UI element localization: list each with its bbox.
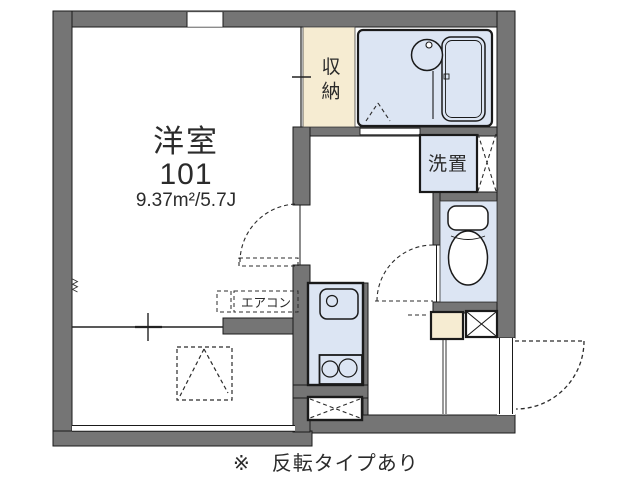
wall-right (497, 11, 515, 338)
toilet-tank-icon (448, 206, 488, 230)
top-window-gap (187, 12, 223, 27)
toilet-door-swing-arc (377, 245, 433, 301)
wall-aircon-block (223, 318, 293, 334)
wall-toilet-top (433, 192, 497, 201)
bathroom (358, 30, 492, 126)
washer-space: 洗置 (420, 134, 496, 192)
aircon: エアコン (217, 291, 298, 312)
ladder-hatch-triangle (180, 349, 228, 396)
ladder-hatch-frame (177, 347, 232, 400)
stove-burner-right (339, 359, 357, 377)
kitchen-hatch-box (308, 397, 362, 420)
room-number: 101 (159, 158, 212, 191)
genkan-step (431, 312, 463, 339)
bottom-window-gap (72, 426, 295, 432)
room-door-swing-arc (240, 204, 298, 262)
kitchen-sink-icon (320, 289, 358, 319)
wall-toilet-left (433, 192, 440, 245)
bottom-window (72, 426, 295, 432)
shaft-x-mark (478, 134, 496, 191)
room-window-partition (72, 279, 223, 341)
top-window (187, 12, 223, 27)
aircon-label: エアコン (241, 296, 291, 310)
room-door-leaf (239, 258, 298, 266)
room-area: 9.37m²/5.7J (136, 190, 236, 211)
aircon-pipe-box (217, 291, 231, 312)
floor-plan-drawing: 収納 洗置 (0, 0, 640, 483)
kitchen-hatch-frame (308, 397, 362, 420)
closet: 収納 (292, 27, 355, 127)
main-room: 洋室 101 9.37m²/5.7J エアコン (72, 124, 300, 400)
entrance-door-swing-arc (516, 341, 584, 409)
stove-burner-left (322, 361, 338, 377)
wall-left (53, 11, 72, 446)
ladder-hatch (177, 347, 232, 400)
wall-mid-upper (293, 127, 310, 205)
wall-hatch-zigzag (73, 279, 78, 292)
bath-door-threshold (360, 128, 420, 135)
wall-bottom-left (53, 431, 312, 446)
entrance-opening (497, 338, 515, 415)
floor-plan-page: 収納 洗置 (0, 0, 640, 483)
kitchen (308, 283, 363, 420)
washer-label: 洗置 (428, 153, 468, 175)
room-label: 洋室 (153, 124, 219, 159)
kitchen-drain-icon (327, 296, 338, 307)
bath-faucet-icon (426, 42, 432, 48)
footnote: ※ 反転タイプあり (233, 452, 419, 475)
wall-top (53, 11, 515, 27)
